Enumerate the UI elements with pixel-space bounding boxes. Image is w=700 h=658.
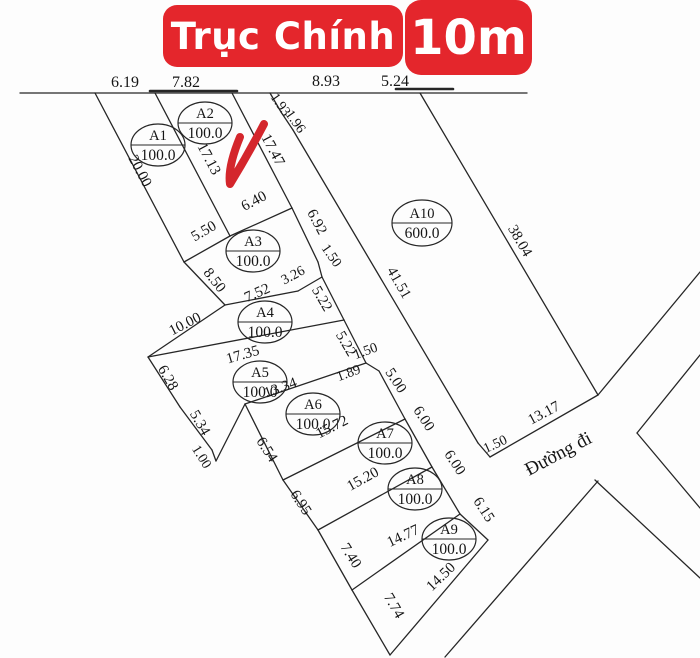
boundary-line (445, 481, 598, 657)
road-label: Đường đi (521, 428, 595, 481)
boundary-line (318, 262, 322, 277)
parcel-id: A8 (406, 472, 424, 488)
main-road-label: Trục Chính (171, 15, 395, 58)
main-road-banner: Trục Chính (163, 5, 403, 67)
dimension-label: 1.89 (335, 362, 363, 384)
parcel-id: A4 (256, 305, 274, 321)
boundary-line (184, 236, 230, 262)
boundary-line (637, 433, 700, 508)
dimension-label: 5.22 (308, 284, 335, 315)
parcel-id: A3 (244, 234, 262, 250)
dimension-label: 14.50 (424, 560, 459, 595)
parcel-id: A5 (251, 365, 269, 381)
red-checkmark (230, 124, 264, 184)
dimension-label: 3.26 (279, 264, 308, 289)
dimension-label: 15.20 (344, 464, 381, 494)
dimension-label: 17.35 (224, 343, 261, 368)
parcel-area: 100.0 (432, 541, 467, 558)
parcel-id: A2 (196, 106, 214, 122)
parcel-area: 600.0 (405, 225, 440, 242)
dimension-label: 6.28 (154, 363, 181, 394)
dimension-label: 7.82 (172, 74, 200, 91)
dimension-label: 17.13 (194, 140, 224, 177)
parcel-area: 100.0 (368, 445, 403, 462)
parcel-area: 100.0 (236, 253, 271, 270)
dimension-label: 6.54 (252, 434, 280, 465)
boundary-line (230, 208, 292, 236)
parcel-id: A10 (410, 206, 435, 222)
dimension-label: 5.50 (189, 218, 220, 245)
dimension-label: 13.17 (525, 398, 563, 428)
dimension-label: 6.15 (469, 494, 497, 525)
boundary-line (212, 450, 216, 461)
boundary-line (637, 355, 700, 433)
boundary-line (420, 93, 598, 395)
dimension-label: 6.19 (111, 74, 139, 91)
parcel-area: 100.0 (188, 125, 223, 142)
parcel-area: 100.0 (248, 324, 283, 341)
parcel-area: 100.0 (398, 491, 433, 508)
dimension-label: 41.51 (383, 264, 414, 301)
road-width-label: 10m (410, 10, 527, 66)
dimension-label: 14.77 (385, 522, 423, 551)
dimension-label: 6.00 (409, 403, 437, 434)
boundary-line (366, 363, 379, 371)
road-width-banner: 10m (405, 0, 532, 75)
dimension-label: 38.04 (504, 222, 535, 260)
plot-map: 6.197.828.935.241.931.9620.0017.1317.475… (0, 0, 700, 658)
dimension-label: 7.74 (380, 591, 407, 622)
dimension-label: 10.00 (167, 310, 204, 340)
dimension-label: 5.24 (381, 73, 409, 90)
boundary-line (595, 480, 700, 578)
dimension-label: 8.50 (200, 265, 229, 296)
dimension-label: 6.40 (239, 188, 270, 214)
parcel-id: A1 (149, 128, 167, 144)
dimension-label: 6.92 (303, 207, 329, 238)
parcel-area: 100.0 (141, 147, 176, 164)
dimension-label: 6.00 (440, 447, 468, 478)
parcel-id: A9 (440, 522, 458, 538)
parcel-id: A7 (376, 426, 394, 442)
parcel-area: 100.0 (296, 416, 331, 433)
dimension-label: 8.93 (312, 73, 340, 90)
dimension-label: 5.34 (186, 408, 213, 439)
dimension-label: 7.40 (337, 541, 364, 572)
dimension-label: 1.50 (318, 242, 344, 271)
boundary-line (216, 404, 245, 461)
parcel-id: A6 (304, 397, 322, 413)
dimension-label: 5.00 (381, 365, 409, 396)
parcel-area: 100.0 (243, 384, 278, 401)
boundary-line (598, 272, 700, 395)
cadastral-map-page: 6.197.828.935.241.931.9620.0017.1317.475… (0, 0, 700, 658)
